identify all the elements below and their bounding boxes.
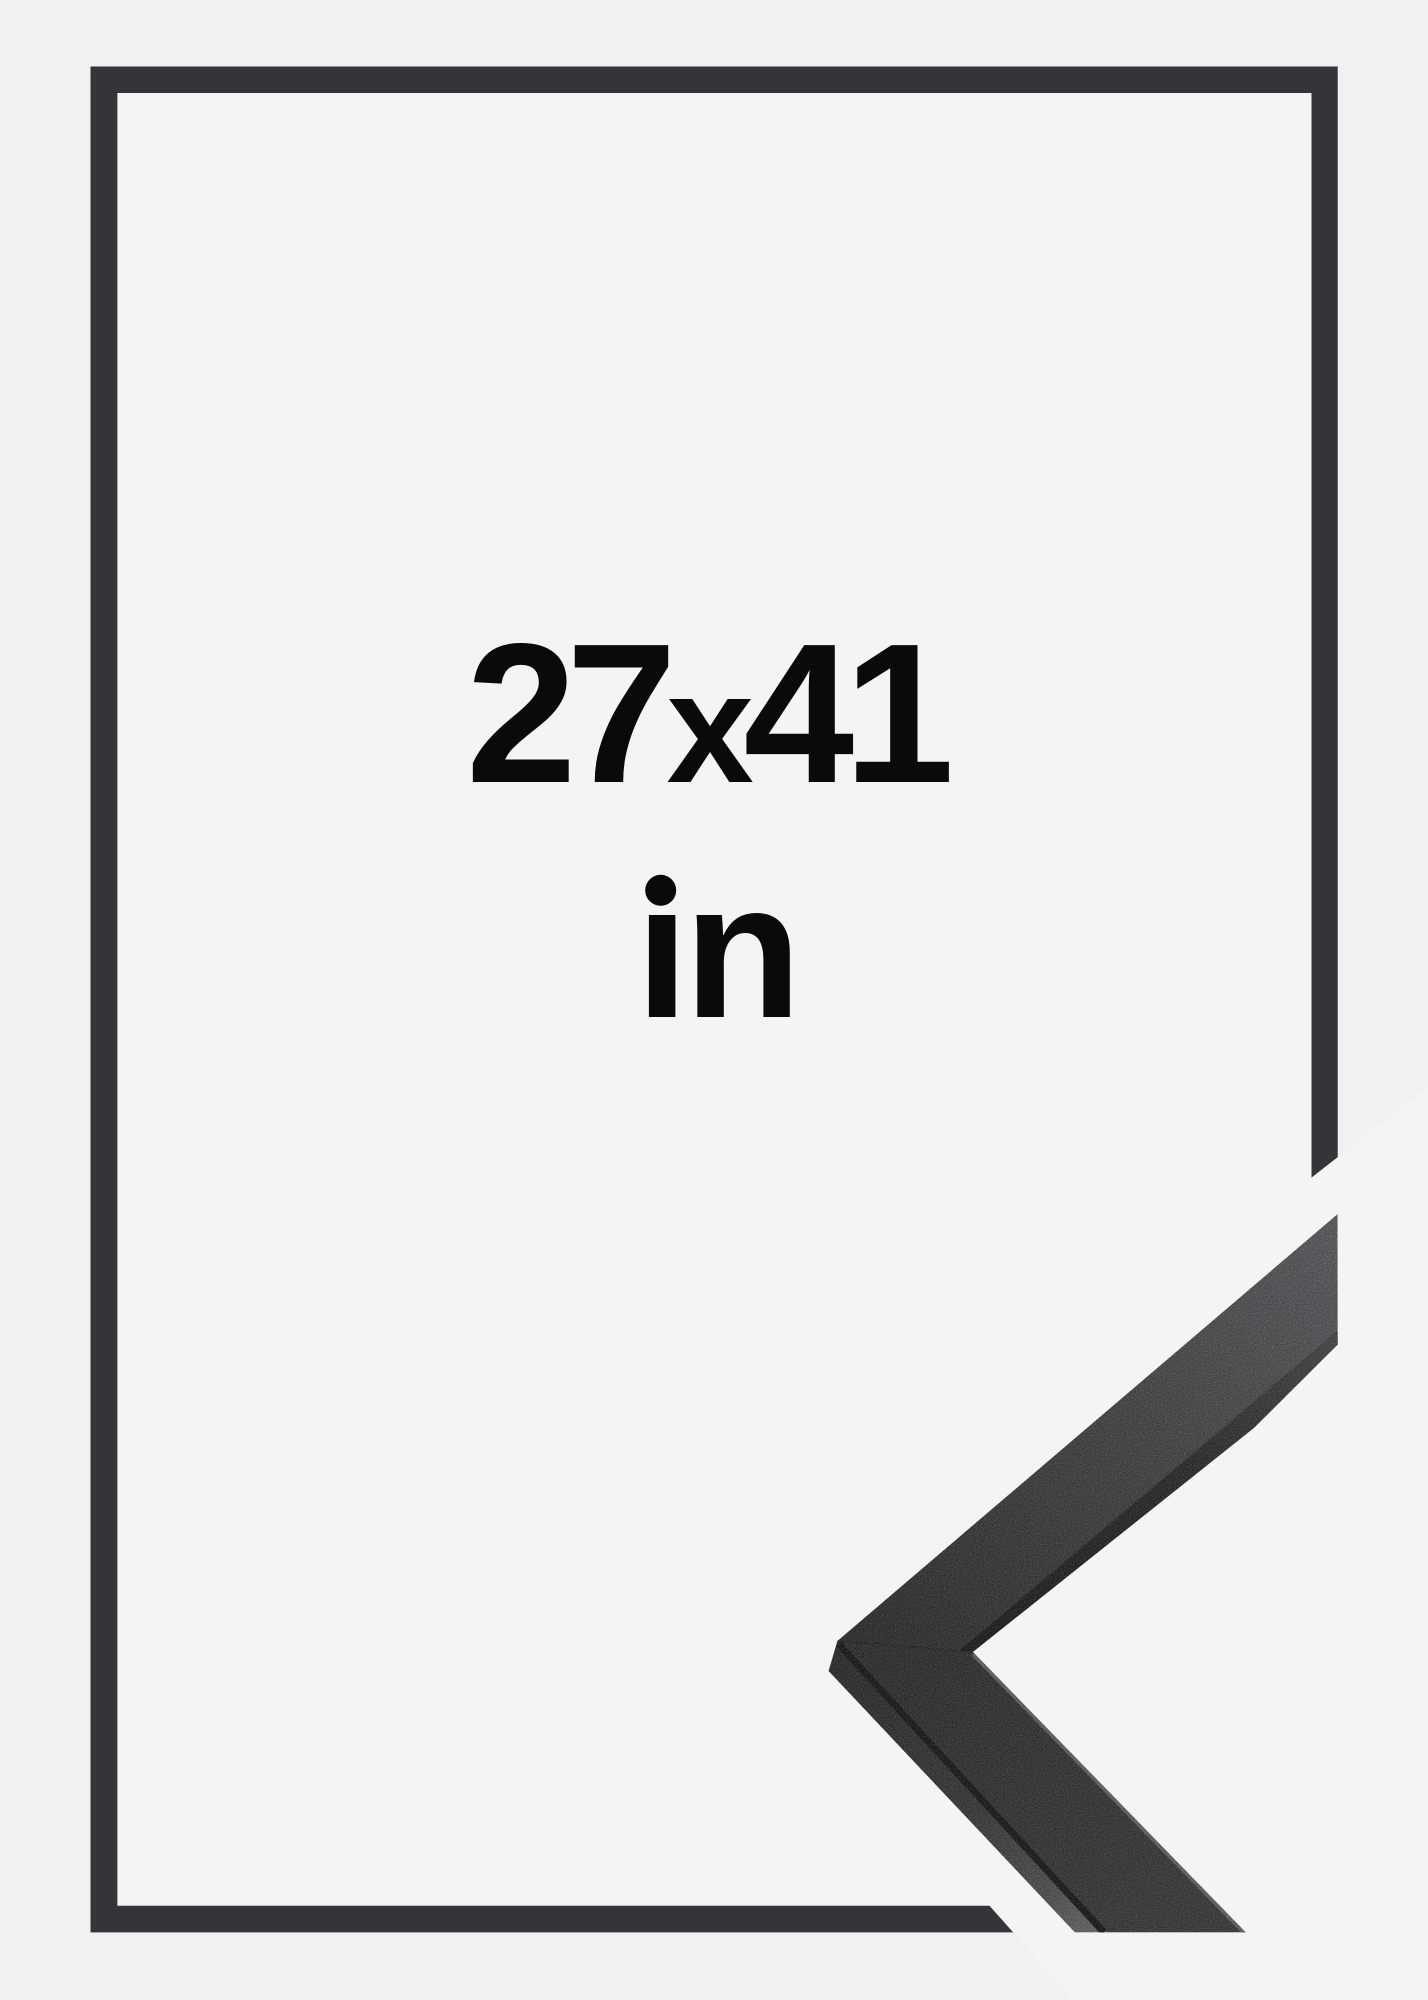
svg-text:ın: ın: [635, 842, 797, 1058]
